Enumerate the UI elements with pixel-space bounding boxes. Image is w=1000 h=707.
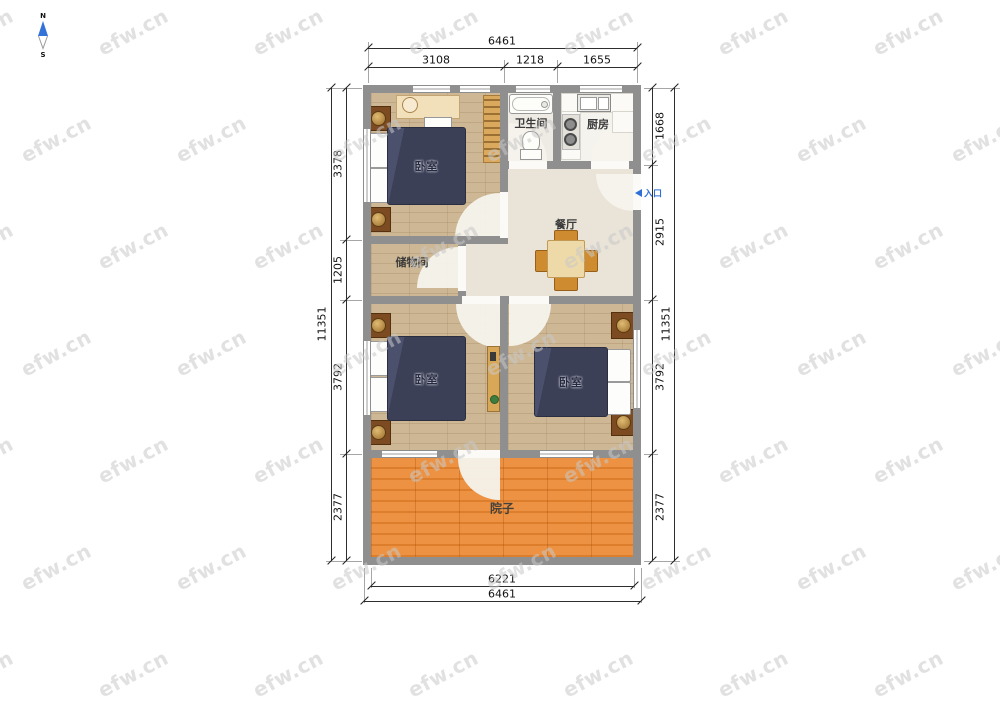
watermark-text: efw.cn [947,325,1000,382]
watermark-text: efw.cn [404,646,483,703]
watermark-text: efw.cn [17,111,96,168]
dim-label-right-seg1: 1668 [654,112,667,140]
storage-door-leaf [458,246,466,291]
watermark-text: efw.cn [94,4,173,61]
dim-label-right-total: 11351 [660,307,673,342]
dim-label-left-seg1: 3378 [332,150,345,178]
dim-line-bottom-outer [364,601,641,602]
watermark-text: efw.cn [94,218,173,275]
compass-north-label: N [40,12,46,20]
bedroom3-label: 卧室 [559,374,583,390]
outer-wall-right [633,85,641,565]
bedroom3-bed: 卧室 [534,347,608,417]
window [516,85,550,93]
window [580,85,622,93]
bedroom1-label: 卧室 [415,158,439,174]
watermark-text: efw.cn [94,432,173,489]
watermark-text: efw.cn [637,539,716,596]
dim-line-top-seg [504,67,557,68]
dim-line-top-total [368,48,637,49]
watermark-text: efw.cn [869,4,948,61]
outer-wall-bottom [363,557,641,565]
dim-label-left-seg4: 2377 [332,493,345,521]
dim-label-bottom-outer: 6461 [488,588,516,601]
kitchen-counter-right [612,111,634,133]
bedroom2-bed: 卧室 [387,336,466,421]
watermark-text: efw.cn [249,4,328,61]
ext-line [557,60,558,83]
dim-line-left-seg [346,240,347,300]
watermark-text: efw.cn [94,646,173,703]
window [460,85,490,93]
compass-south-label: S [40,51,45,59]
watermark-text: efw.cn [172,325,251,382]
dim-label-left-total: 11351 [316,307,329,342]
dim-label-bottom-inner: 6221 [488,573,516,586]
dim-line-top-seg [368,67,504,68]
ladder-shelf [483,95,501,163]
watermark-text: efw.cn [559,4,638,61]
wall-under-bedroom1 [363,236,508,244]
dim-label-top-seg2: 1218 [516,54,544,67]
compass-needle-south-icon [39,36,47,47]
stove-burner-icon [564,133,577,146]
watermark-text: efw.cn [792,539,871,596]
dining-chair [554,276,578,291]
window [363,341,371,415]
dim-label-top-total: 6461 [488,35,516,48]
kitchen-sink [577,94,611,112]
watermark-text: efw.cn [869,646,948,703]
bedroom1-door-leaf [500,192,508,238]
bedroom1-bed: 卧室 [387,127,466,205]
dim-line-left-seg [346,300,347,454]
desk-fan-icon [402,97,418,113]
watermark-text: efw.cn [637,325,716,382]
watermark-text: efw.cn [172,539,251,596]
storage-label: 储物间 [396,254,429,270]
dining-chair [583,250,598,272]
window [540,450,593,458]
watermark-text: efw.cn [792,325,871,382]
bedroom2-door-opening [462,296,500,304]
kitchen-label: 厨房 [587,116,609,132]
floorplan-page: { "watermark": { "text": "efw.cn" }, "co… [0,0,1000,707]
watermark-text: efw.cn [17,325,96,382]
dim-label-right-seg3: 3792 [654,363,667,391]
dim-line-left-seg [346,454,347,561]
dim-label-left-seg2: 1205 [332,256,345,284]
dim-label-top-seg3: 1655 [583,54,611,67]
dim-label-right-seg4: 2377 [654,493,667,521]
compass-needle-north-icon [38,21,48,36]
watermark-text: efw.cn [869,218,948,275]
watermark-text: efw.cn [0,432,17,489]
dim-line-top-seg [557,67,637,68]
watermark-text: efw.cn [249,218,328,275]
watermark-text: efw.cn [869,432,948,489]
watermark-text: efw.cn [714,4,793,61]
entry-label: 入口 [644,187,662,200]
watermark-text: efw.cn [0,218,17,275]
bathtub [509,94,553,114]
watermark-text: efw.cn [947,111,1000,168]
bedroom3-door-opening [509,296,549,304]
compass: N S [28,10,58,62]
entry-arrow-icon [635,189,642,197]
wall-between-bedrooms [500,296,508,458]
watermark-text: efw.cn [714,432,793,489]
yard-label: 院子 [490,500,514,517]
dim-label-top-seg1: 3108 [422,54,450,67]
stove-burner-icon [564,118,577,131]
tall-cabinet [487,346,500,412]
watermark-text: efw.cn [0,646,17,703]
window [363,129,371,202]
dim-label-left-seg3: 3792 [332,363,345,391]
watermark-text: efw.cn [714,646,793,703]
dining-table [547,240,585,278]
dim-label-right-seg2: 2915 [654,218,667,246]
dining-floor-west [466,244,500,296]
watermark-text: efw.cn [172,111,251,168]
bedroom2-label: 卧室 [415,371,439,387]
window [413,85,450,93]
kitchen-door-opening [591,161,629,169]
window [382,450,437,458]
watermark-text: efw.cn [559,646,638,703]
wall-bath-kitchen [553,85,561,169]
watermark-text: efw.cn [947,539,1000,596]
bathroom-label: 卫生间 [515,115,548,131]
yard-door-opening [458,450,500,458]
watermark-text: efw.cn [249,646,328,703]
watermark-text: efw.cn [792,111,871,168]
dim-line-left-seg [346,88,347,240]
watermark-text: efw.cn [637,111,716,168]
watermark-text: efw.cn [404,4,483,61]
window [633,330,641,408]
watermark-text: efw.cn [17,539,96,596]
watermark-text: efw.cn [249,432,328,489]
ext-line [504,60,505,83]
bathroom-door-opening [509,161,547,169]
toilet-tank [520,149,542,160]
watermark-text: efw.cn [714,218,793,275]
watermark-text: efw.cn [0,4,17,61]
dim-line-right-total [674,88,675,561]
